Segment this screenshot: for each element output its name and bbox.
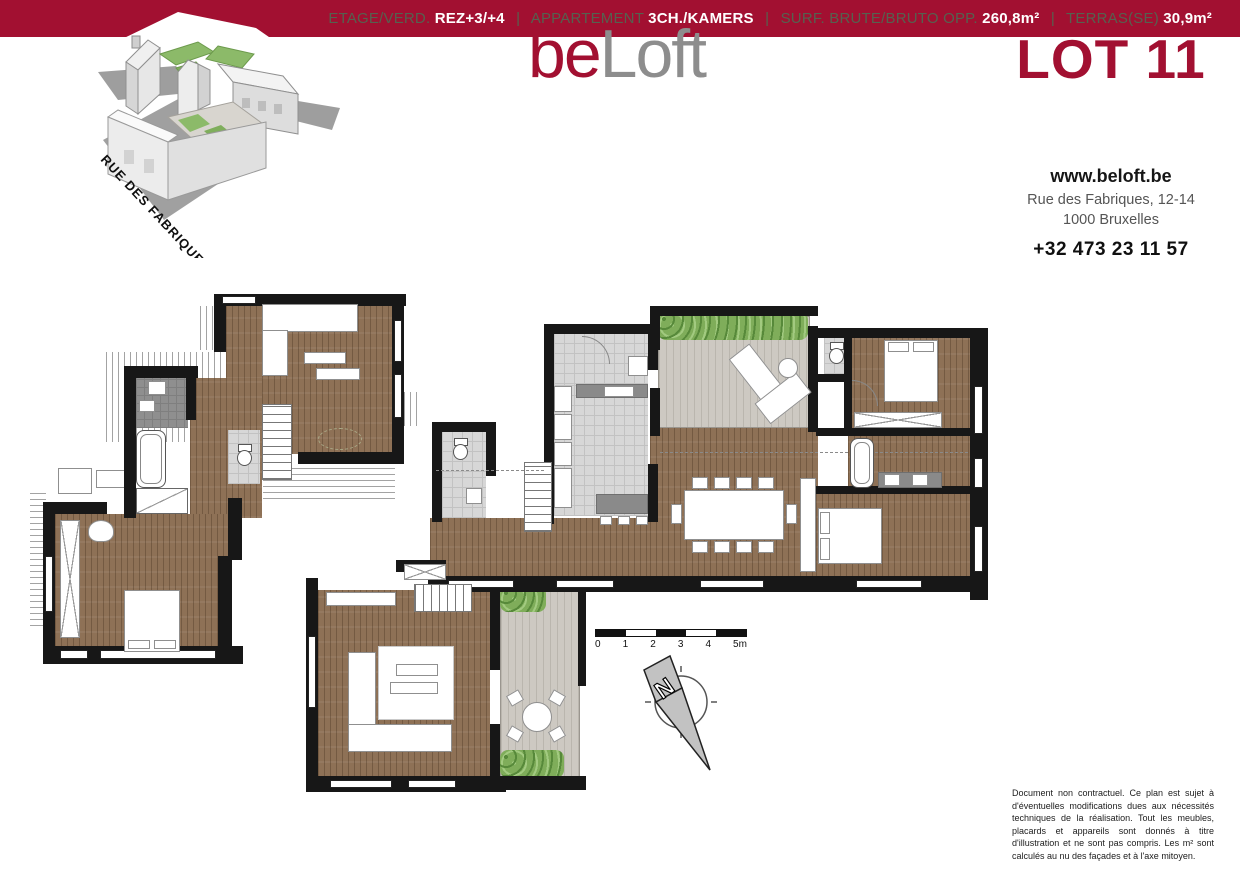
spec-separator: | (1051, 10, 1055, 27)
scale-tick: 0 (595, 639, 601, 650)
sideboard (800, 478, 816, 572)
sink (912, 474, 928, 486)
window (700, 580, 764, 588)
staircase (414, 584, 472, 612)
chair (758, 477, 774, 489)
sofa (262, 330, 288, 376)
wall (432, 422, 442, 522)
scale-tick: 4 (705, 639, 711, 650)
stool (636, 516, 648, 525)
wall (650, 306, 818, 316)
scale-bar-segments (595, 629, 747, 637)
hedge-top-terrace (658, 312, 808, 340)
spec-value: 260,8m² (982, 10, 1039, 27)
website-link[interactable]: www.beloft.be (998, 166, 1224, 187)
chair (714, 541, 730, 553)
stool (600, 516, 612, 525)
sink (884, 474, 900, 486)
north-compass-icon: N (636, 652, 726, 774)
sofa (262, 304, 358, 332)
window (60, 650, 88, 659)
wall (218, 556, 232, 652)
pillow (820, 512, 830, 534)
shower-tray (466, 488, 482, 504)
rug (318, 428, 362, 450)
bathtub (136, 430, 166, 488)
chair (692, 477, 708, 489)
window (856, 580, 922, 588)
side-table (778, 358, 798, 378)
logo-part-be: be (528, 16, 600, 92)
lot-number: LOT 11 (1008, 32, 1214, 87)
window (394, 320, 402, 362)
corner-sofa (348, 724, 452, 752)
spec-separator: | (516, 10, 520, 27)
wall (490, 586, 500, 670)
chair (671, 504, 682, 524)
wall (186, 374, 196, 420)
staircase (524, 462, 552, 532)
toilet (828, 342, 844, 364)
scale-bar: 0 1 2 3 4 5m (595, 629, 747, 650)
chair (758, 541, 774, 553)
wardrobe (854, 412, 942, 428)
dining-table (684, 490, 784, 540)
kitchen-sink (554, 442, 572, 466)
window (45, 556, 53, 612)
spec-value: REZ+3/+4 (435, 10, 505, 27)
kitchen-cabinet (554, 386, 572, 412)
kitchen-island (596, 494, 648, 514)
stool (618, 516, 630, 525)
phone-number: +32 473 23 11 57 (998, 239, 1224, 261)
wall (648, 464, 658, 522)
scale-tick: 2 (650, 639, 656, 650)
spec-label: TERRAS(SE) (1066, 10, 1159, 27)
washing-machine (148, 381, 166, 395)
entry-cabinet (628, 356, 648, 376)
wall (650, 306, 660, 350)
spec-label: SURF. BRUTE/BRUTO OPP. (781, 10, 978, 27)
shelf (326, 592, 396, 606)
wall (816, 428, 974, 436)
address-line2: 1000 Bruxelles (998, 211, 1224, 231)
contact-block: www.beloft.be Rue des Fabriques, 12-14 1… (998, 166, 1224, 261)
chair (736, 477, 752, 489)
toilet (236, 444, 252, 466)
pillow (888, 342, 909, 352)
window (974, 458, 983, 488)
wall (228, 498, 242, 560)
pillow (820, 538, 830, 560)
window (330, 780, 392, 788)
window (974, 386, 983, 434)
window (308, 636, 316, 708)
brochure-page: ETAGE/VERD. REZ+3/+4 | APPARTEMENT 3CH./… (0, 0, 1240, 877)
disclaimer-text: Document non contractuel. Ce plan est su… (1012, 787, 1214, 863)
chair (714, 477, 730, 489)
wall (486, 422, 496, 476)
window (408, 780, 456, 788)
coffee-table (396, 664, 438, 676)
scale-tick: 1 (623, 639, 629, 650)
staircase (262, 404, 292, 480)
wall (432, 422, 494, 432)
building-3d-illustration: RUE DES FABRIQUES (48, 2, 348, 258)
toilet (452, 438, 468, 460)
wall (578, 586, 586, 686)
chair (692, 541, 708, 553)
bay-window (58, 468, 92, 494)
terrace-table (522, 702, 552, 732)
wardrobe (60, 520, 80, 638)
logo-part-loft: Loft (600, 16, 705, 92)
spec-separator: | (765, 10, 769, 27)
window (556, 580, 614, 588)
coffee-table (304, 352, 346, 364)
chair (736, 541, 752, 553)
bathtub (850, 438, 874, 488)
wall (544, 324, 656, 334)
wall (844, 336, 852, 430)
section-line (436, 470, 544, 471)
coffee-table (390, 682, 438, 694)
scale-tick: 3 (678, 639, 684, 650)
wall (298, 452, 402, 464)
chair (786, 504, 797, 524)
pillow (154, 640, 176, 649)
wall (816, 374, 850, 382)
coffee-table (316, 368, 360, 380)
shower (136, 488, 188, 514)
hedge-bottom-terrace (500, 750, 564, 778)
window (394, 374, 402, 418)
kitchen-cabinet (554, 414, 572, 440)
wall (498, 776, 586, 790)
section-line (660, 452, 968, 453)
pillow (128, 640, 150, 649)
armchair (88, 520, 114, 542)
hob (604, 386, 634, 397)
kitchen-cabinet (554, 468, 572, 508)
spec-value: 30,9m² (1163, 10, 1212, 27)
wall (650, 388, 660, 436)
beloft-logo: beLoft (528, 20, 705, 88)
sink (139, 400, 155, 412)
scale-tick: 5m (733, 639, 747, 650)
pillow (913, 342, 934, 352)
window (222, 296, 256, 304)
window (974, 526, 983, 572)
wall (124, 366, 136, 518)
wall (814, 328, 976, 338)
address-line1: Rue des Fabriques, 12-14 (998, 191, 1224, 211)
wardrobe (404, 564, 446, 580)
